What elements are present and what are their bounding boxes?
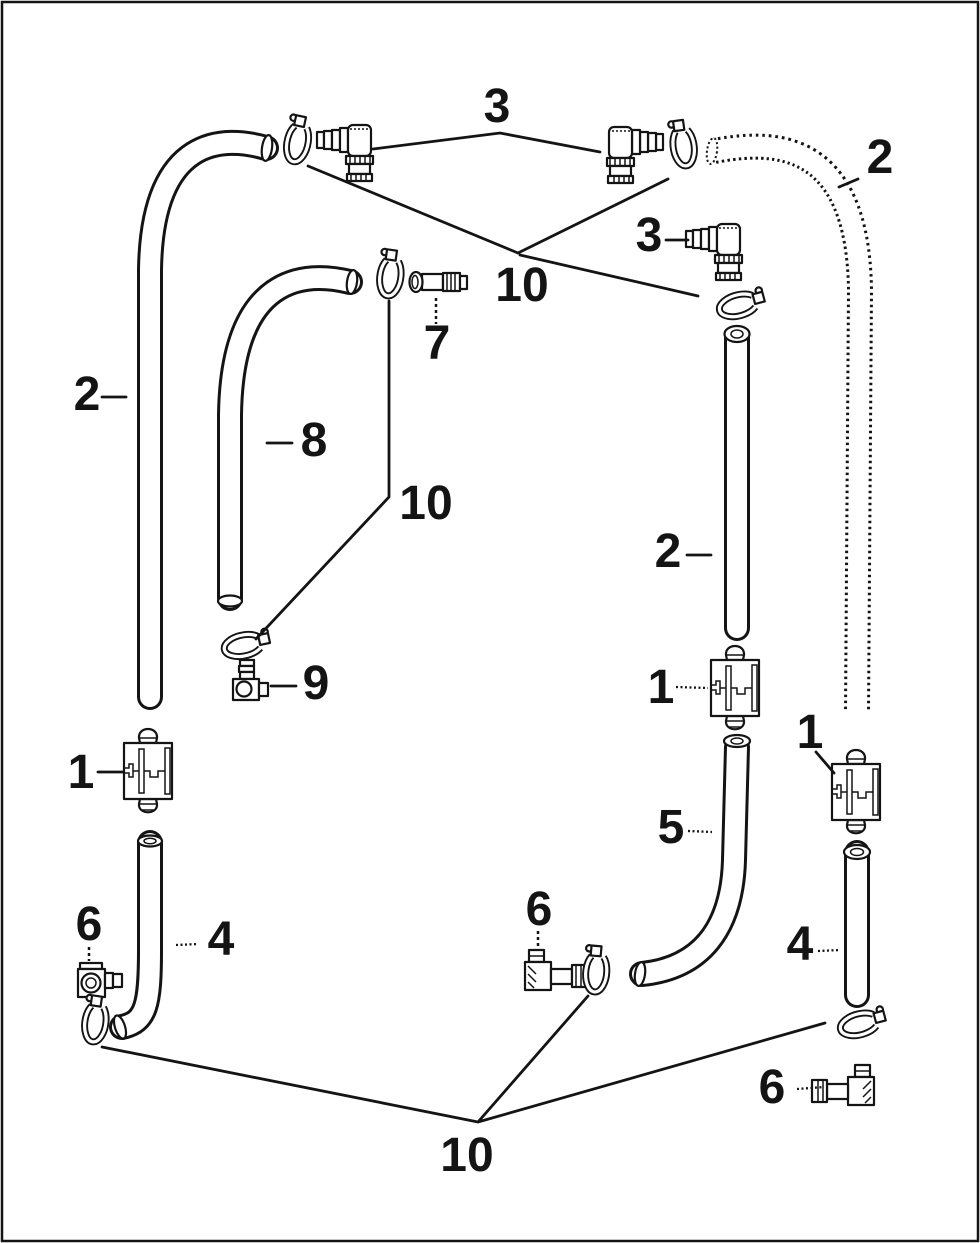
callout-6-center: 6: [526, 883, 553, 949]
fitting-9: [233, 660, 268, 700]
fitting9-stub: [259, 683, 268, 696]
clamp-10-center-right: [716, 287, 767, 321]
clamp-10-hose8-top: [376, 248, 405, 297]
callout-label: 1: [68, 746, 95, 799]
callout-5: 5: [658, 801, 712, 854]
clamp-10-bottom-center: [582, 945, 609, 993]
fitting-6-right: [812, 1065, 874, 1105]
hose-outline: [150, 143, 266, 697]
callout-label: 3: [636, 209, 663, 262]
leader-dotted: [176, 944, 198, 945]
tube-opening: [725, 326, 750, 342]
leader-line: [256, 301, 389, 639]
callout-2-center: 2: [655, 525, 711, 578]
callout-label: 2: [867, 131, 894, 184]
callout-6-left: 6: [76, 898, 103, 961]
callout-1-right: 1: [797, 706, 834, 773]
callout-label: 10: [399, 477, 452, 530]
fitting6-left-barb-2: [113, 974, 122, 987]
callout-label: 10: [440, 1129, 493, 1182]
fitting7-shaft: [422, 274, 443, 290]
parts-diagram-canvas: 3 10 2 3 7 2 8 10 2 1 9: [0, 0, 980, 1243]
clamp-10-hose8-bottom: [222, 628, 272, 660]
callout-2-left: 2: [74, 368, 126, 421]
callout-label: 7: [424, 317, 451, 370]
hose-4-left: [112, 836, 162, 1040]
callout-3-top: 3: [373, 80, 600, 152]
leader-line: [102, 996, 825, 1122]
callout-1-center-right: 1: [648, 661, 708, 714]
hose-8: [218, 269, 359, 606]
elbow-connector-3-right: [607, 127, 663, 183]
callout-9: 9: [271, 657, 329, 710]
clamp-10-top-left: [282, 114, 314, 164]
clamp-10-bottom-right: [837, 1006, 888, 1040]
hose-opening-top: [138, 836, 162, 847]
callout-label: 8: [301, 414, 328, 467]
callout-label: 1: [797, 706, 824, 759]
fitting6-left-nut: [82, 974, 101, 993]
clamp-10-top-right: [668, 119, 697, 168]
callout-10-bottom: 10: [102, 996, 825, 1182]
callout-8: 8: [267, 414, 327, 467]
callout-label: 10: [495, 259, 548, 312]
fitting6-left-barb-1: [105, 973, 113, 988]
callout-label: 2: [74, 368, 101, 421]
fitting-6-center: [525, 950, 587, 990]
hose-opening-top: [724, 735, 750, 747]
elbow-connector-3-center: [686, 224, 742, 280]
parts-diagram-page: 3 10 2 3 7 2 8 10 2 1 9: [0, 0, 980, 1243]
callout-7: 7: [424, 298, 451, 370]
callout-label: 4: [208, 913, 235, 966]
tube-2-center: [725, 326, 750, 628]
callout-label: 6: [76, 898, 103, 951]
callout-label: 4: [787, 918, 814, 971]
callout-label: 6: [526, 883, 553, 936]
callout-label: 9: [303, 657, 330, 710]
callout-1-left: 1: [68, 746, 123, 799]
hose-fill: [230, 278, 350, 598]
hose-opening-bottom: [218, 596, 242, 607]
leader-line: [373, 133, 600, 152]
hose-outline: [642, 747, 737, 974]
connector-1-right: [832, 750, 880, 833]
callout-label: 6: [759, 1061, 786, 1114]
connector-1-center: [711, 646, 759, 729]
callout-2-right: 2: [839, 131, 893, 187]
callout-4-right: 4: [787, 918, 840, 971]
fitting-6-left: [78, 963, 122, 997]
leader-dotted: [688, 831, 712, 832]
clamp-10-bottom-left: [81, 994, 110, 1043]
fitting7-tip: [460, 276, 467, 289]
callout-label: 3: [484, 80, 511, 133]
connector-1-left: [124, 729, 172, 812]
tube-4-right: [844, 845, 870, 995]
hose-5: [633, 735, 750, 987]
leader-dotted: [676, 687, 708, 688]
callout-3-center-right: 3: [636, 209, 688, 262]
leader-dotted: [818, 950, 840, 951]
callout-label: 2: [655, 525, 682, 578]
callout-label: 1: [648, 661, 675, 714]
fitting9-nut: [237, 682, 252, 697]
callout-label: 5: [658, 801, 685, 854]
tube-opening: [844, 845, 870, 859]
hose-2-left: [150, 134, 274, 697]
fitting-7: [410, 272, 468, 292]
hose-fill: [150, 143, 266, 697]
callout-4-left: 4: [176, 913, 235, 966]
